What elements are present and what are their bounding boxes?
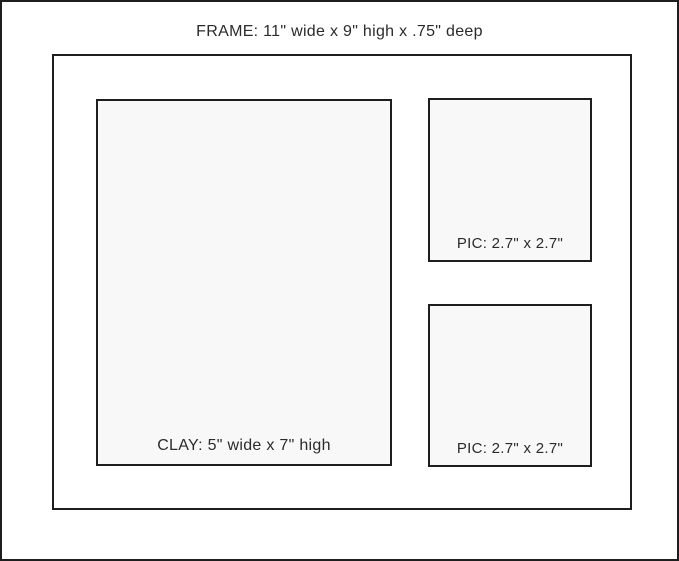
pic-opening-top: PIC: 2.7" x 2.7" (428, 98, 592, 262)
clay-opening-label: CLAY: 5" wide x 7" high (98, 437, 390, 455)
pic-opening-bottom: PIC: 2.7" x 2.7" (428, 304, 592, 467)
frame-outline: CLAY: 5" wide x 7" high PIC: 2.7" x 2.7"… (52, 54, 632, 510)
pic-opening-top-label: PIC: 2.7" x 2.7" (430, 235, 590, 252)
clay-opening: CLAY: 5" wide x 7" high (96, 99, 392, 466)
pic-opening-bottom-label: PIC: 2.7" x 2.7" (430, 440, 590, 457)
frame-layout-diagram: FRAME: 11" wide x 9" high x .75" deep CL… (0, 0, 679, 561)
frame-dimensions-title: FRAME: 11" wide x 9" high x .75" deep (2, 23, 677, 41)
